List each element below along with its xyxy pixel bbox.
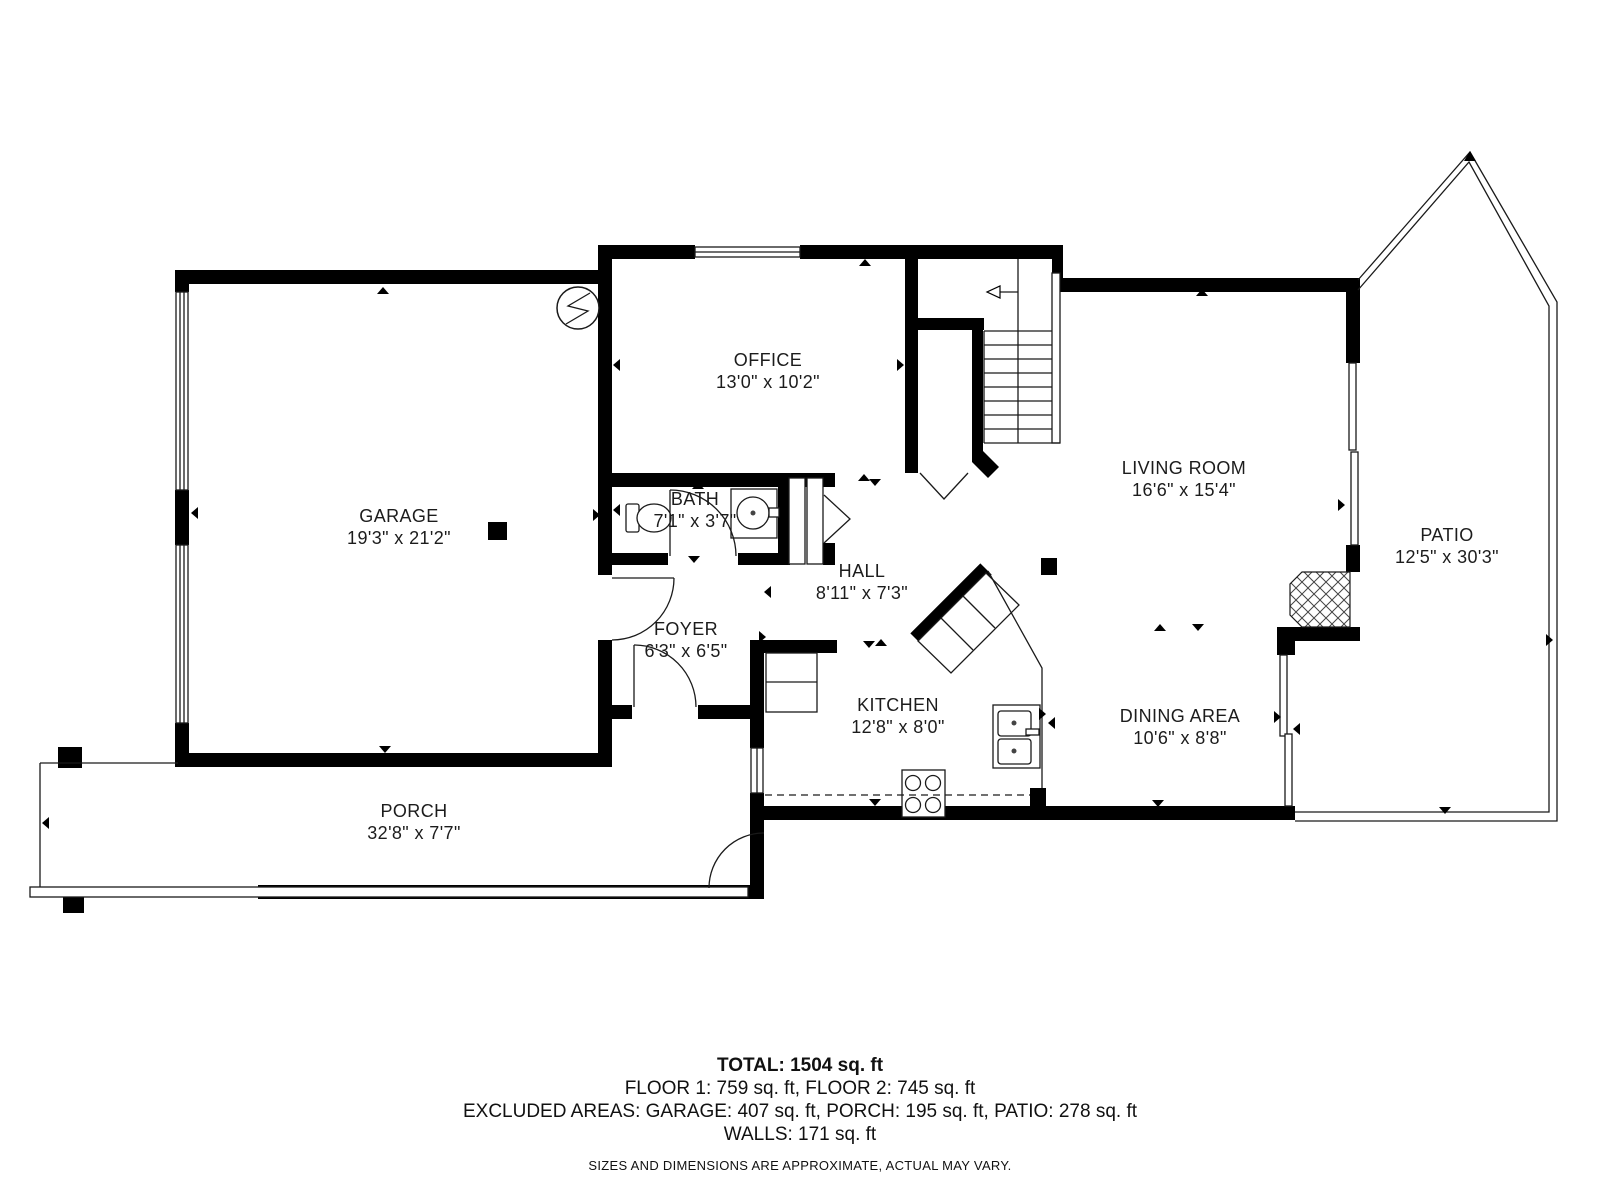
foyer-name: FOYER xyxy=(644,618,727,640)
electrical-symbol-icon xyxy=(557,287,599,329)
floor-plan-drawing xyxy=(0,0,1600,1200)
area-summary: TOTAL: 1504 sq. ft FLOOR 1: 759 sq. ft, … xyxy=(0,1054,1600,1174)
burner xyxy=(906,798,921,813)
room-label-kitchen: KITCHEN 12'8" x 8'0" xyxy=(851,694,945,738)
porch-name: PORCH xyxy=(367,800,461,822)
room-label-dining-area: DINING AREA 10'6" x 8'8" xyxy=(1120,705,1240,749)
foyer-dims: 6'3" x 6'5" xyxy=(644,640,727,662)
hall-closet xyxy=(789,478,850,564)
bath-dims: 7'1" x 3'7" xyxy=(653,510,736,532)
understair-closet-door xyxy=(920,473,968,499)
floor-areas: FLOOR 1: 759 sq. ft, FLOOR 2: 745 sq. ft xyxy=(0,1077,1600,1100)
burner xyxy=(906,776,921,791)
office-name: OFFICE xyxy=(716,349,820,371)
floor-plan-page: GARAGE 19'3" x 21'2" OFFICE 13'0" x 10'2… xyxy=(0,0,1600,1200)
room-label-porch: PORCH 32'8" x 7'7" xyxy=(367,800,461,844)
patio-sliding-door xyxy=(1280,655,1287,736)
fireplace-hatch xyxy=(1290,572,1350,627)
wall-area: WALLS: 171 sq. ft xyxy=(0,1123,1600,1146)
hall-column xyxy=(1041,558,1057,575)
room-label-patio: PATIO 12'5" x 30'3" xyxy=(1395,524,1499,568)
garage-column xyxy=(488,522,507,540)
garage-dims: 19'3" x 21'2" xyxy=(347,527,451,549)
room-label-bath: BATH 7'1" x 3'7" xyxy=(653,488,736,532)
patio-name: PATIO xyxy=(1395,524,1499,546)
kitchen-dims: 12'8" x 8'0" xyxy=(851,716,945,738)
office-dims: 13'0" x 10'2" xyxy=(716,371,820,393)
room-label-foyer: FOYER 6'3" x 6'5" xyxy=(644,618,727,662)
patio-sliding-door xyxy=(1285,734,1292,806)
kitchen-wall-end xyxy=(1030,788,1046,806)
bath-faucet xyxy=(769,508,779,517)
closet-door-panel xyxy=(789,478,805,564)
burner xyxy=(926,798,941,813)
room-label-garage: GARAGE 19'3" x 21'2" xyxy=(347,505,451,549)
hall-dims: 8'11" x 7'3" xyxy=(816,582,908,604)
patio-outline xyxy=(1295,151,1557,821)
disclaimer: SIZES AND DIMENSIONS ARE APPROXIMATE, AC… xyxy=(0,1158,1600,1174)
bath-name: BATH xyxy=(653,488,736,510)
dining-area-name: DINING AREA xyxy=(1120,705,1240,727)
closet-door-panel xyxy=(807,478,823,564)
room-label-hall: HALL 8'11" x 7'3" xyxy=(816,560,908,604)
room-label-living-room: LIVING ROOM 16'6" x 15'4" xyxy=(1122,457,1246,501)
burner xyxy=(926,776,941,791)
living-room-name: LIVING ROOM xyxy=(1122,457,1246,479)
stairs-up-arrow-icon xyxy=(987,286,1000,298)
porch-dims: 32'8" x 7'7" xyxy=(367,822,461,844)
kitchen-faucet xyxy=(1026,729,1039,735)
hall-name: HALL xyxy=(816,560,908,582)
living-room-dims: 16'6" x 15'4" xyxy=(1122,479,1246,501)
porch-post xyxy=(58,747,82,768)
excluded-areas: EXCLUDED AREAS: GARAGE: 407 sq. ft, PORC… xyxy=(0,1100,1600,1123)
sink-drain xyxy=(751,511,756,516)
kitchen-name: KITCHEN xyxy=(851,694,945,716)
patio-dims: 12'5" x 30'3" xyxy=(1395,546,1499,568)
living-room-window xyxy=(1349,363,1356,450)
living-room-window xyxy=(1351,452,1358,545)
dining-area-dims: 10'6" x 8'8" xyxy=(1120,727,1240,749)
walls-layer xyxy=(58,245,1360,913)
closet-opening-chevron xyxy=(824,495,850,543)
room-label-office: OFFICE 13'0" x 10'2" xyxy=(716,349,820,393)
total-area: TOTAL: 1504 sq. ft xyxy=(0,1054,1600,1077)
garage-name: GARAGE xyxy=(347,505,451,527)
